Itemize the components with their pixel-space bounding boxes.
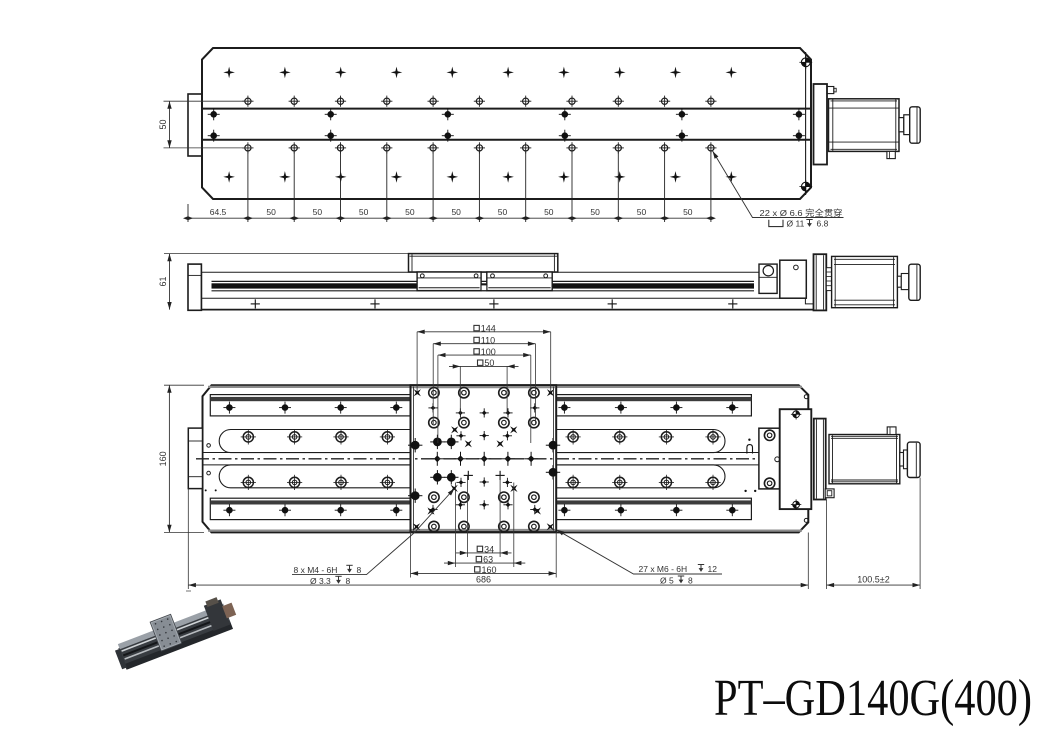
svg-text:6.8: 6.8 xyxy=(817,219,829,229)
svg-text:8: 8 xyxy=(346,576,351,586)
svg-text:64.5: 64.5 xyxy=(210,207,227,217)
svg-text:8: 8 xyxy=(688,576,693,586)
svg-text:50: 50 xyxy=(359,207,369,217)
svg-text:8: 8 xyxy=(357,565,362,575)
svg-text:160: 160 xyxy=(158,451,168,466)
svg-text:686: 686 xyxy=(476,575,491,585)
svg-text:50: 50 xyxy=(484,358,494,368)
svg-text:50: 50 xyxy=(683,207,693,217)
svg-text:Ø 5: Ø 5 xyxy=(660,576,674,586)
svg-text:50: 50 xyxy=(544,207,554,217)
svg-text:63: 63 xyxy=(483,555,493,565)
svg-text:61: 61 xyxy=(158,276,168,286)
svg-text:110: 110 xyxy=(481,336,495,346)
svg-text:Ø 11: Ø 11 xyxy=(787,219,805,229)
svg-text:50: 50 xyxy=(451,207,461,217)
svg-text:22 x Ø 6.6 完全贯穿: 22 x Ø 6.6 完全贯穿 xyxy=(760,208,843,218)
svg-text:100: 100 xyxy=(481,347,496,357)
svg-text:160: 160 xyxy=(482,565,497,575)
svg-text:12: 12 xyxy=(708,564,718,574)
svg-text:27 x M6 - 6H: 27 x M6 - 6H xyxy=(639,564,688,574)
svg-text:PT–GD140G(400): PT–GD140G(400) xyxy=(714,670,1032,727)
svg-text:50: 50 xyxy=(405,207,415,217)
svg-text:100.5±2: 100.5±2 xyxy=(857,575,889,585)
svg-text:8 x M4 - 6H: 8 x M4 - 6H xyxy=(294,565,338,575)
svg-text:Ø 3.3: Ø 3.3 xyxy=(310,576,331,586)
svg-text:50: 50 xyxy=(637,207,647,217)
svg-text:34: 34 xyxy=(484,544,494,554)
svg-text:144: 144 xyxy=(481,324,496,334)
svg-text:50: 50 xyxy=(590,207,600,217)
svg-text:50: 50 xyxy=(266,207,276,217)
svg-text:50: 50 xyxy=(158,119,168,129)
svg-text:50: 50 xyxy=(313,207,323,217)
svg-text:50: 50 xyxy=(498,207,508,217)
